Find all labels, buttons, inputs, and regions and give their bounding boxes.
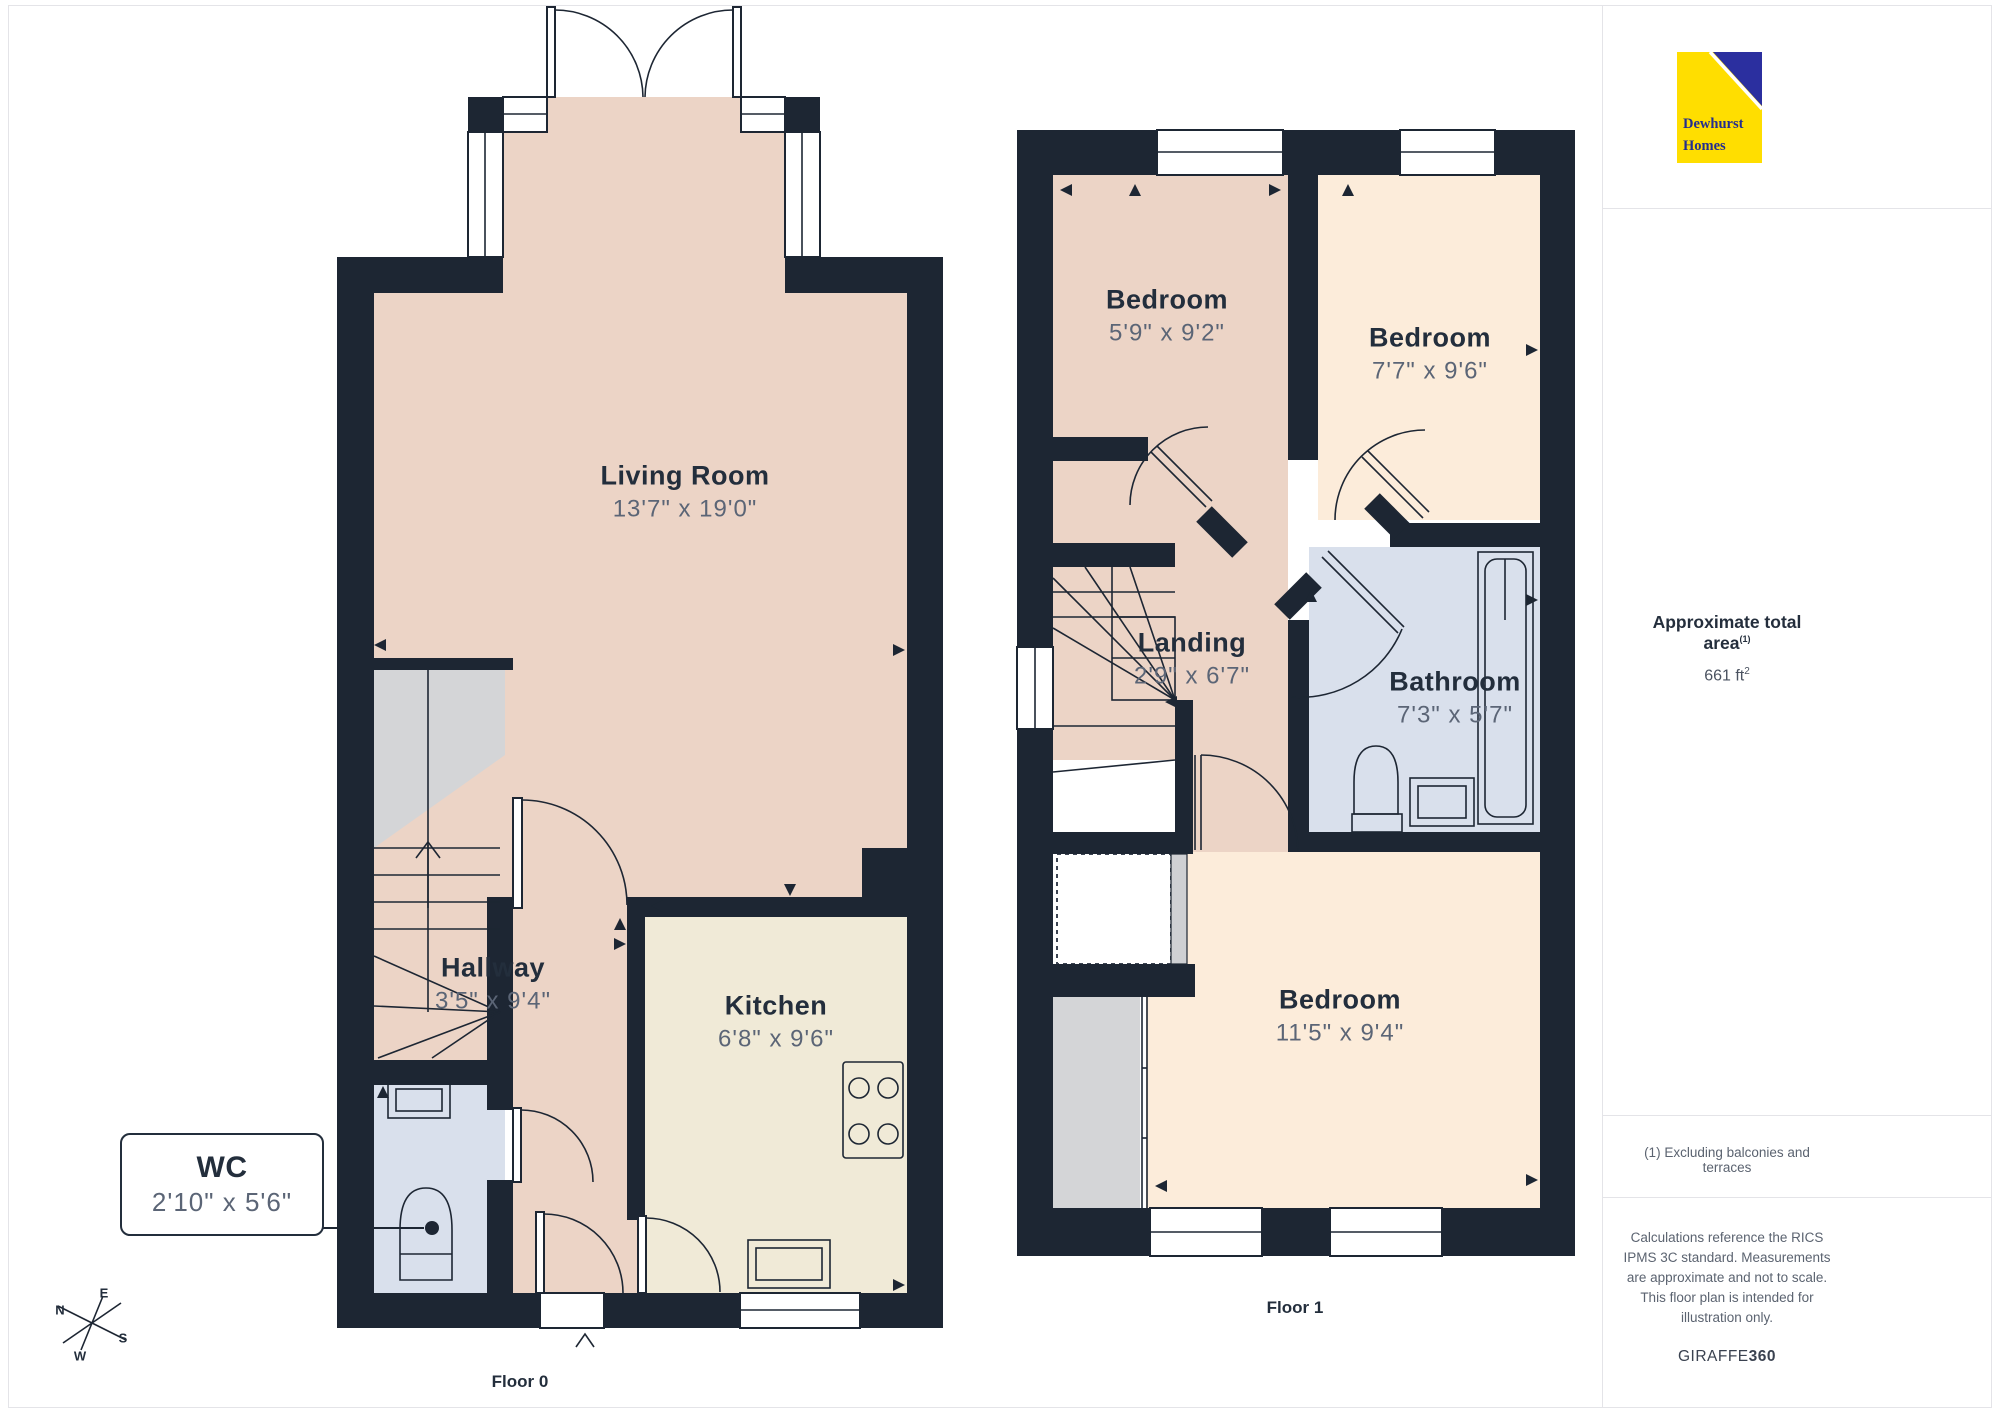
logo-text-line1: Dewhurst — [1683, 117, 1743, 132]
bedroom-small-window — [1157, 130, 1283, 175]
total-area-title: Approximate total area(1) — [1627, 612, 1827, 654]
logo-text-line2: Homes — [1683, 139, 1726, 154]
void-opening — [1057, 854, 1171, 964]
bedroom-mid-window — [1400, 130, 1495, 175]
floorplan-page: Living Room 13'7" x 19'0" Hallway 3'5" x… — [0, 0, 2000, 1414]
disclaimer-text: Calculations reference the RICS IPMS 3C … — [1622, 1228, 1832, 1328]
wc-area — [374, 1085, 505, 1293]
french-door-threshold — [547, 97, 741, 132]
kitchen-window — [740, 1293, 860, 1328]
floor1-label: Floor 1 — [1267, 1298, 1324, 1318]
bedroom-large-window-right — [1330, 1208, 1442, 1256]
living-room-bay-area — [503, 132, 785, 293]
bedroom-small-label: Bedroom 5'9" x 9'2" — [1106, 285, 1228, 348]
sidebar-separator-2 — [1602, 1115, 1992, 1116]
kitchen-area — [645, 917, 907, 1293]
void-edge — [1171, 854, 1187, 964]
total-area-value: 661 ft2 — [1627, 666, 1827, 685]
wc-callout: WC 2'10" x 5'6" — [120, 1133, 324, 1236]
bedroom-mid-label: Bedroom 7'7" x 9'6" — [1369, 323, 1491, 386]
sidebar-separator-1 — [1602, 208, 1992, 209]
wardrobe-area — [1052, 997, 1140, 1208]
landing-label: Landing 2'9" x 6'7" — [1134, 628, 1250, 691]
french-doors — [547, 7, 741, 97]
sidebar-separator-3 — [1602, 1197, 1992, 1198]
giraffe360-brand: GIRAFFE360 — [1678, 1348, 1776, 1366]
wardrobe-doors — [1142, 997, 1147, 1208]
wc-callout-dot — [425, 1221, 439, 1235]
total-area-block: Approximate total area(1) 661 ft2 — [1627, 612, 1827, 685]
hallway-label: Hallway 3'5" x 9'4" — [435, 953, 551, 1016]
bathroom-label: Bathroom 7'3" x 5'7" — [1389, 667, 1521, 730]
bedroom-large-window-left — [1150, 1208, 1262, 1256]
compass-e: E — [100, 1286, 109, 1301]
compass-n: N — [55, 1303, 64, 1318]
compass-w: W — [74, 1349, 86, 1364]
landing-window — [1017, 647, 1053, 729]
floor0-label: Floor 0 — [492, 1372, 549, 1392]
bedroom-large-label: Bedroom 11'5" x 9'4" — [1276, 985, 1405, 1048]
living-room-label: Living Room 13'7" x 19'0" — [601, 461, 770, 524]
compass-s: S — [119, 1331, 128, 1346]
area-footnote: (1) Excluding balconies and terraces — [1627, 1145, 1827, 1175]
floor0-plan — [320, 7, 943, 1347]
compass-rose — [58, 1296, 126, 1350]
kitchen-label: Kitchen 6'8" x 9'6" — [718, 991, 834, 1054]
